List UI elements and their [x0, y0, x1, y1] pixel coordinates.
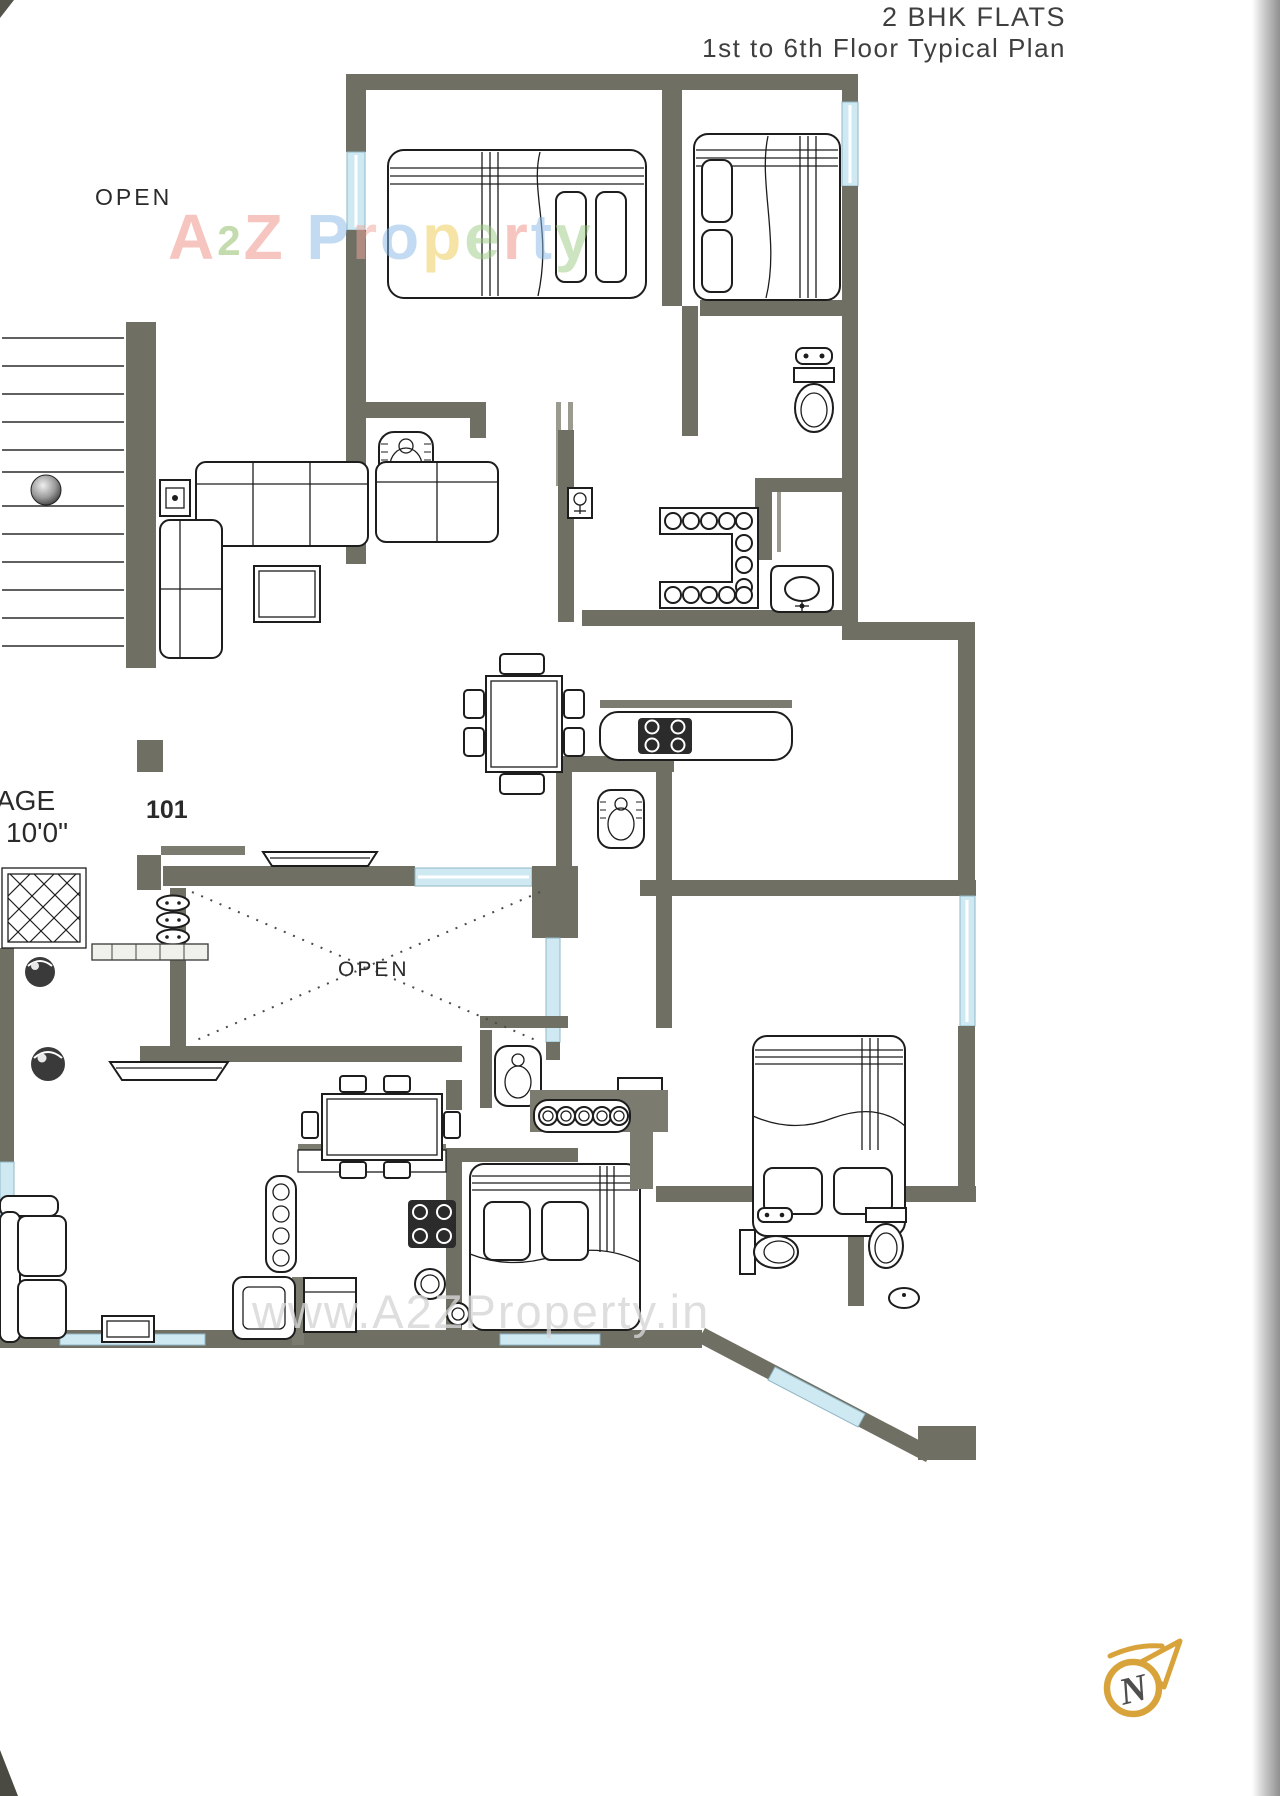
double-bed-icon [753, 1036, 905, 1236]
page-edge-shadow [1252, 0, 1280, 1796]
plant-icon [31, 1047, 65, 1081]
plant-icon [25, 957, 55, 987]
staircase [2, 338, 124, 646]
a2z-logo-watermark: A2Z Property [168, 200, 594, 274]
flat-number-label: 101 [146, 796, 188, 824]
window-sill [92, 944, 208, 960]
stair-newel-ball-icon [31, 475, 61, 505]
plan-title-line2: 1st to 6th Floor Typical Plan [702, 33, 1066, 63]
north-compass-icon: N [1107, 1641, 1180, 1714]
sofa-icon [160, 462, 498, 658]
floor-plan-page: OPEN OPEN 101 AGE 10'0" 2 BHK FLATS 1st … [0, 0, 1280, 1796]
wash-area-oval-fixtures [157, 896, 189, 945]
tv-unit-icon [160, 480, 190, 516]
coffee-table-icon [254, 566, 320, 622]
wash-basin-icon [771, 566, 833, 612]
burner-column-icon [266, 1176, 296, 1272]
scan-corner-bottom-left [0, 1750, 18, 1796]
scan-corner-top-left [0, 0, 14, 18]
plan-title-line1: 2 BHK FLATS [882, 2, 1066, 32]
toilet-commode-icon [740, 1208, 798, 1274]
shelf-ledge-icon [263, 852, 377, 866]
toilet-commode-icon [866, 1208, 906, 1268]
kitchen-platform-icon [660, 508, 758, 608]
url-watermark: www.A2ZProperty.in [251, 1285, 710, 1338]
sofa-icon [0, 1196, 66, 1342]
open-label-courtyard: OPEN [338, 958, 410, 981]
open-label-upper: OPEN [95, 184, 172, 210]
double-bed-icon [694, 134, 840, 300]
coffee-table-icon [102, 1316, 154, 1342]
wash-basin-icon [889, 1288, 919, 1308]
tap-icon [568, 488, 592, 518]
gas-stove-icon [408, 1200, 456, 1248]
dining-table-icon [302, 1076, 460, 1178]
squat-toilet-icon [598, 790, 644, 848]
passage-dimension-label: 10'0" [6, 817, 68, 848]
tv-unit-icon [110, 1062, 228, 1080]
passage-label: AGE [0, 785, 55, 816]
foyer-floor-mat [2, 868, 86, 948]
kitchen-hob-counter-icon [600, 700, 792, 760]
toilet-commode-icon [794, 348, 834, 432]
